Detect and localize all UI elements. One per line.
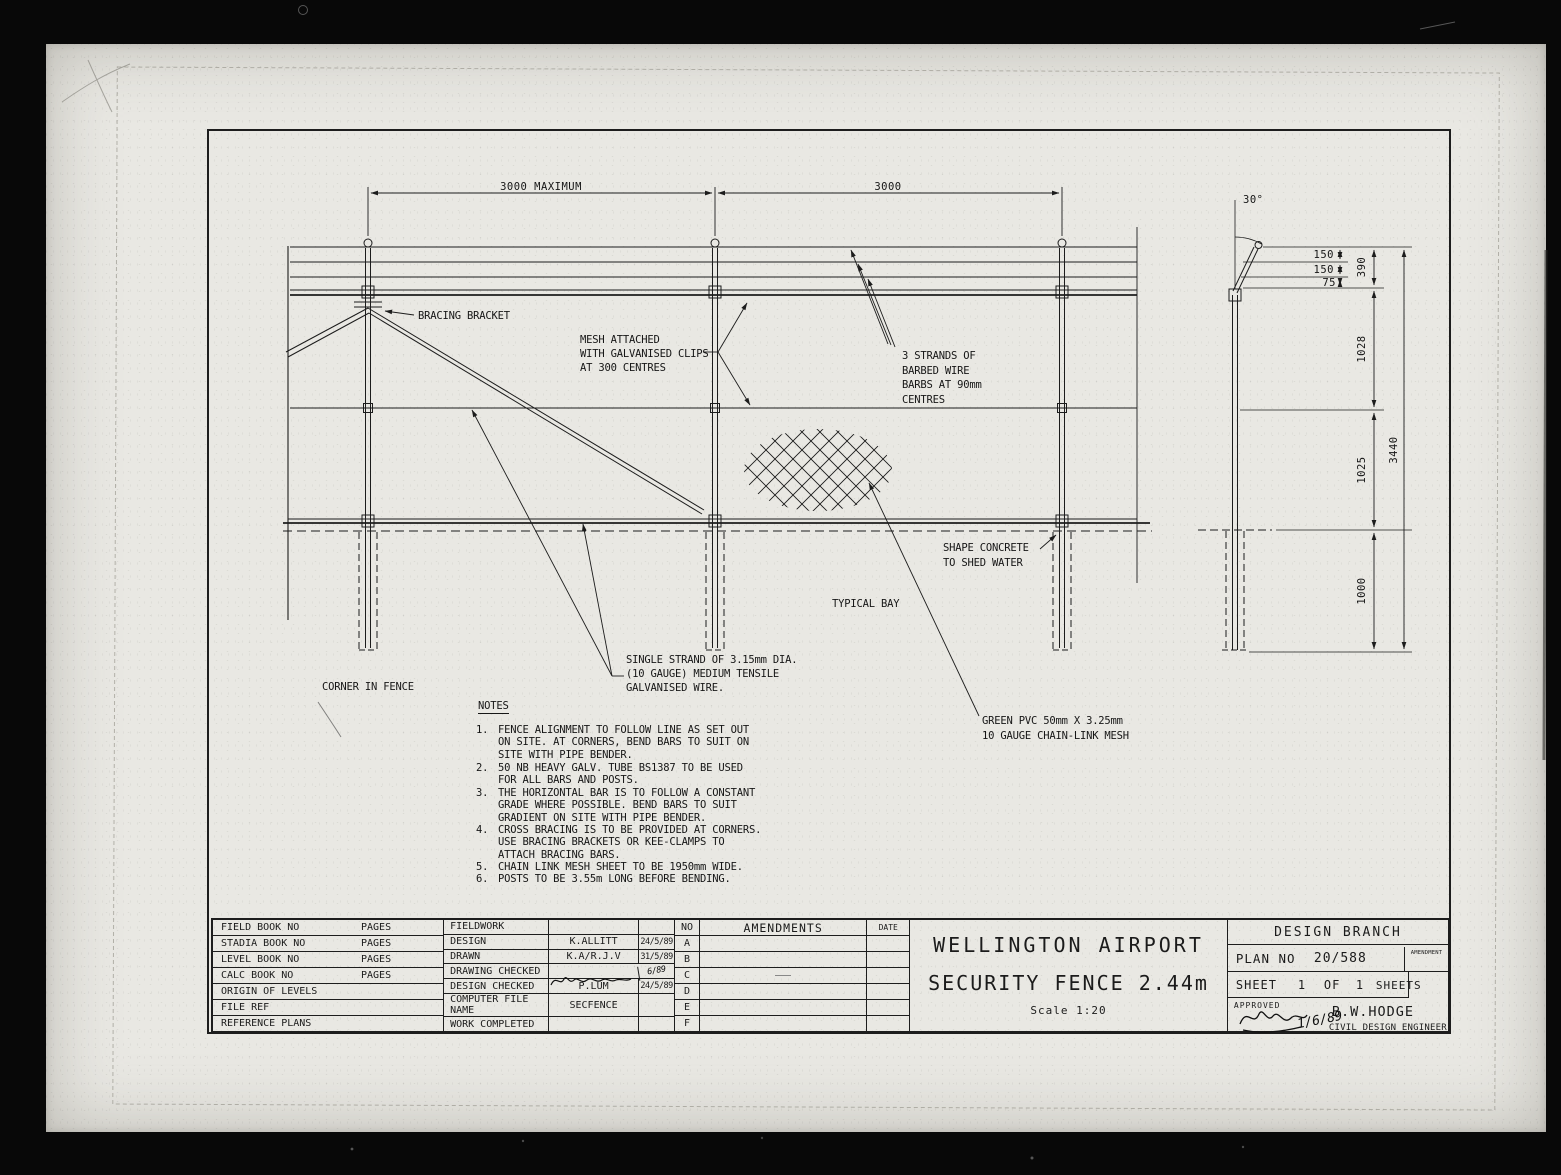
sheet-count: 1 — [1356, 978, 1364, 992]
amendment-row — [700, 984, 866, 1000]
work-label: DRAWN — [443, 950, 548, 964]
side-elevation — [1198, 200, 1412, 652]
label-mesh-attached: MESH ATTACHED WITH GALVANISED CLIPS AT 3… — [580, 333, 709, 375]
drawing-scale: Scale 1:20 — [910, 1004, 1227, 1017]
sheets-label: SHEETS — [1376, 979, 1422, 992]
work-name: K.ALLITT — [548, 935, 638, 949]
amendment-date — [867, 984, 909, 1000]
label-corner-in-fence: CORNER IN FENCE — [322, 680, 414, 694]
post-1 — [359, 239, 377, 650]
sheet-no: 1 — [1298, 978, 1306, 992]
work-name: K.A/R.J.V — [548, 950, 638, 964]
work-date-handwritten: 6/89 — [637, 962, 675, 981]
work-label: DESIGN — [443, 935, 548, 949]
note-text: THE HORIZONTAL BAR IS TO FOLLOW A CONSTA… — [498, 787, 755, 824]
plan-no-row: PLAN NO 20/588 AMENDMENT — [1228, 945, 1448, 972]
amendment-date — [867, 952, 909, 968]
plan-no-value: 20/588 — [1314, 951, 1367, 966]
approved-title: CIVIL DESIGN ENGINEER — [1329, 1023, 1447, 1033]
drawing-title-box: WELLINGTON AIRPORT SECURITY FENCE 2.44m … — [909, 920, 1227, 1031]
dim-angle: 30° — [1243, 193, 1263, 207]
work-name — [548, 1017, 638, 1031]
note-text: CHAIN LINK MESH SHEET TO BE 1950mm WIDE. — [498, 861, 743, 873]
approved-name: B.W.HODGE — [1332, 1004, 1414, 1020]
work-date: 24/5/89 — [638, 979, 674, 993]
amendment-row — [700, 1016, 866, 1031]
amendment-letter: B — [675, 952, 699, 968]
work-label: WORK COMPLETED — [443, 1017, 548, 1031]
label-bracing-bracket: BRACING BRACKET — [418, 309, 510, 323]
work-label: COMPUTER FILE NAME — [443, 994, 548, 1016]
branch-name: DESIGN BRANCH — [1228, 920, 1448, 945]
amendment-no-column: NO A B C D E F — [674, 920, 699, 1031]
pages-label: PAGES — [361, 922, 391, 933]
dim-150a: 150 — [1308, 248, 1334, 262]
work-name — [548, 920, 638, 934]
note-num: 2. — [476, 762, 488, 774]
sheet-row: SHEET 1 OF 1 SHEETS — [1228, 972, 1448, 998]
label-shape-concrete: SHAPE CONCRETE TO SHED WATER — [943, 541, 1029, 571]
no-header: NO — [675, 920, 699, 936]
book-table: FIELD BOOK NOPAGES STADIA BOOK NOPAGES L… — [213, 920, 443, 1031]
amendment-letter: E — [675, 1000, 699, 1016]
amendment-row — [700, 1000, 866, 1016]
amendment-row — [700, 952, 866, 968]
label-green-pvc: GREEN PVC 50mm X 3.25mm 10 GAUGE CHAIN-L… — [982, 714, 1129, 744]
amendment-letter: F — [675, 1016, 699, 1031]
work-label: FIELDWORK — [443, 920, 548, 934]
amendment-letter: D — [675, 984, 699, 1000]
of-label: OF — [1324, 978, 1340, 992]
sheet-label: SHEET — [1236, 978, 1277, 992]
amendment-letter: A — [675, 936, 699, 952]
pages-label: PAGES — [361, 954, 391, 965]
book-label: LEVEL BOOK NO — [213, 954, 361, 965]
dim-bay2: 3000 — [798, 180, 978, 194]
post-3 — [1053, 239, 1071, 650]
book-label: ORIGIN OF LEVELS — [213, 986, 361, 997]
amendment-date — [867, 1000, 909, 1016]
drawing-frame — [208, 130, 1450, 1033]
plan-no-label: PLAN NO — [1228, 951, 1296, 966]
dim-150b: 150 — [1308, 263, 1334, 277]
note-num: 4. — [476, 824, 488, 836]
dim-1028: 1028 — [1355, 327, 1369, 371]
notes-title: NOTES — [478, 699, 509, 713]
amendment-date — [867, 1016, 909, 1031]
dim-3440: 3440 — [1387, 428, 1401, 472]
amendment-row — [700, 936, 866, 952]
note-text: FENCE ALIGNMENT TO FOLLOW LINE AS SET OU… — [498, 724, 749, 761]
dim-75: 75 — [1310, 276, 1336, 290]
label-typical-bay: TYPICAL BAY — [832, 597, 899, 611]
drawing-checked-signature — [549, 971, 633, 991]
work-date — [638, 1017, 674, 1031]
book-label: FIELD BOOK NO — [213, 922, 361, 933]
note-num: 3. — [476, 787, 488, 799]
note-text: POSTS TO BE 3.55m LONG BEFORE BENDING. — [498, 873, 731, 885]
drawing-title-line1: WELLINGTON AIRPORT — [910, 933, 1227, 957]
amendment-cell: AMENDMENT — [1404, 947, 1448, 971]
note-num: 6. — [476, 873, 488, 885]
amendment-date-column: DATE — [866, 920, 909, 1031]
pages-label: PAGES — [361, 938, 391, 949]
work-label: DESIGN CHECKED — [443, 979, 548, 993]
book-label: STADIA BOOK NO — [213, 938, 361, 949]
amendment-letter: C — [675, 968, 699, 984]
pages-label: PAGES — [361, 970, 391, 981]
work-date: 24/5/89 — [638, 935, 674, 949]
label-3-strands: 3 STRANDS OF BARBED WIRE BARBS AT 90mm C… — [902, 349, 982, 407]
book-label: FILE REF — [213, 1002, 361, 1013]
dim-1025: 1025 — [1355, 448, 1369, 492]
amendments-column: AMENDMENTS — [699, 920, 866, 1031]
book-label: CALC BOOK NO — [213, 970, 361, 981]
work-date — [638, 920, 674, 934]
dim-1000: 1000 — [1355, 569, 1369, 613]
amendments-header: AMENDMENTS — [700, 920, 866, 936]
scanned-drawing: 3000 MAXIMUM 3000 BRACING BRACKET MESH A… — [0, 0, 1561, 1175]
dim-390: 390 — [1355, 245, 1369, 289]
work-label: DRAWING CHECKED — [443, 964, 548, 978]
note-text: 50 NB HEAVY GALV. TUBE BS1387 TO BE USED… — [498, 762, 743, 787]
note-text: CROSS BRACING IS TO BE PROVIDED AT CORNE… — [498, 824, 761, 861]
date-header: DATE — [867, 920, 909, 936]
work-date — [638, 994, 674, 1016]
amendment-row — [700, 968, 866, 984]
drawing-title-line2: SECURITY FENCE 2.44m — [910, 971, 1227, 995]
front-view — [283, 187, 1152, 716]
note-num: 1. — [476, 724, 488, 736]
note-num: 5. — [476, 861, 488, 873]
label-single-strand: SINGLE STRAND OF 3.15mm DIA. (10 GAUGE) … — [626, 653, 797, 695]
amendment-date — [867, 968, 909, 984]
work-name: SECFENCE — [548, 994, 638, 1016]
book-label: REFERENCE PLANS — [213, 1018, 361, 1029]
amendment-date — [867, 936, 909, 952]
post-2 — [706, 239, 724, 650]
dim-bay1: 3000 MAXIMUM — [451, 180, 631, 194]
top-dimension — [368, 187, 1062, 236]
